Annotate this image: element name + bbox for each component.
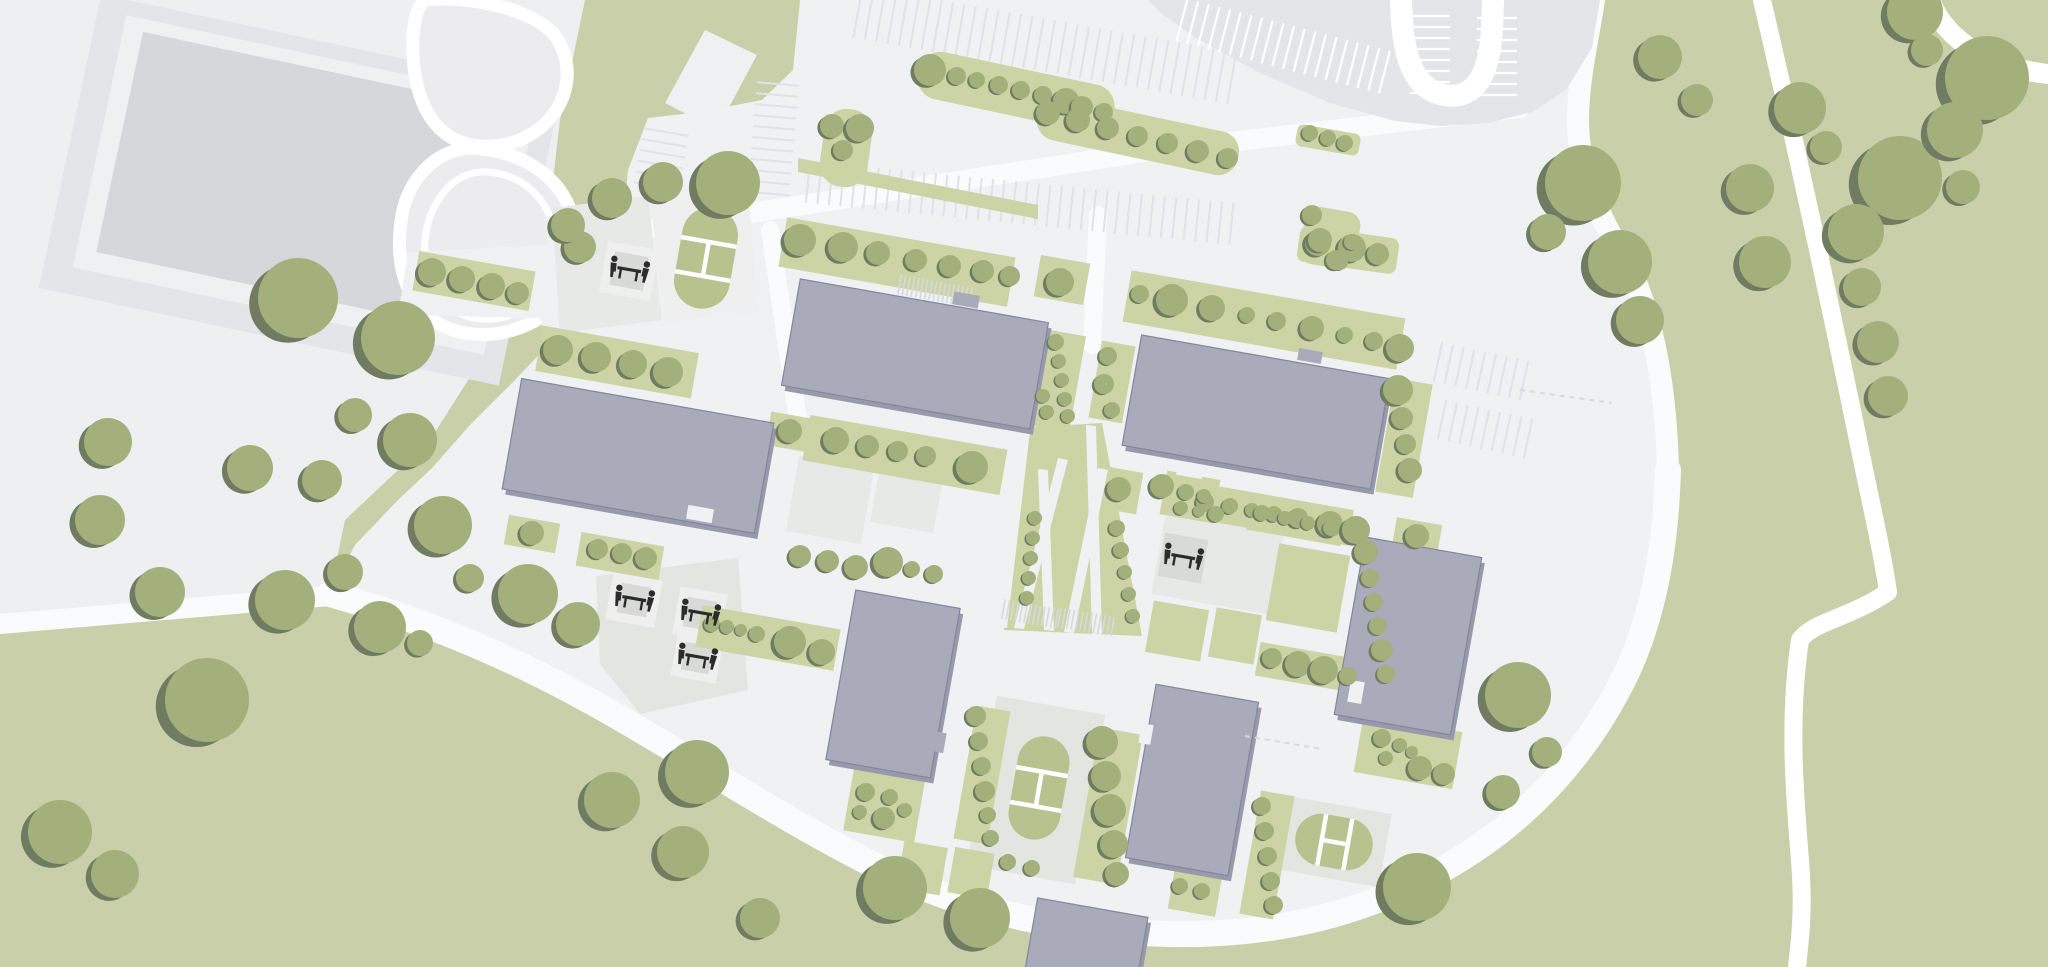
tree-canopy [1326,250,1346,270]
tree-canopy [846,114,874,142]
tree-canopy [456,564,484,592]
tree-canopy [91,850,139,898]
tree-canopy [898,803,912,817]
tree-canopy [1396,434,1416,454]
tree-canopy [1020,591,1034,605]
tree-canopy [1373,729,1391,747]
tree-canopy [1616,296,1664,344]
tree-canopy [449,266,475,292]
tree-canopy [592,178,632,218]
tree-canopy [774,626,806,658]
tree-canopy [888,441,908,461]
tree-canopy [925,565,943,583]
tree-canopy [612,543,632,563]
tree-canopy [1055,373,1069,387]
tree-canopy [939,255,961,277]
tree-canopy [1927,102,1983,158]
tree-canopy [520,521,544,545]
tree-canopy [973,757,991,775]
tree-canopy [956,451,988,483]
tree-canopy [1126,609,1140,623]
tree-canopy [407,630,433,656]
tree-canopy [556,602,600,646]
tree-canopy [1530,214,1566,250]
tree-canopy [227,445,273,491]
tree-canopy [1100,830,1128,858]
tree-canopy [975,781,995,801]
tree-canopy [1278,511,1292,525]
tree-canopy [584,772,640,828]
tree-canopy [1843,268,1881,306]
tree-canopy [507,282,529,304]
tree-canopy [1040,405,1054,419]
tree-canopy [635,547,657,569]
tree-canopy [1365,332,1383,350]
tree-canopy [916,446,936,466]
tree-canopy [696,151,760,215]
tree-canopy [1308,228,1332,252]
tree-canopy [1187,140,1209,162]
tree-canopy [1337,327,1353,343]
tree-canopy [1383,375,1413,405]
lawn-square [1266,543,1350,632]
tree-canopy [1122,587,1136,601]
tree-canopy [833,140,853,160]
tree-canopy [970,732,988,750]
tree-canopy [1254,505,1270,521]
site-plan-map [0,0,2048,967]
tree-canopy [882,789,898,805]
tree-canopy [1265,896,1283,914]
tree-canopy [1208,506,1224,522]
tree-canopy [1405,524,1429,548]
tree-canopy [1302,205,1322,225]
tree-canopy [1024,860,1040,876]
tree-canopy [1774,82,1826,134]
tree-canopy [1545,145,1621,221]
tree-canopy [980,807,996,823]
tree-canopy [1868,376,1908,416]
tree-canopy [383,413,437,467]
tree-canopy [1337,135,1353,151]
tree-canopy [1810,131,1842,163]
tree-canopy [1256,822,1274,840]
tree-canopy [740,898,780,938]
tree-canopy [1109,520,1125,536]
site-plan-page [0,0,2048,967]
tree-canopy [653,357,683,387]
tree-canopy [1150,474,1174,498]
tree-canopy [784,224,816,256]
tree-canopy [1194,883,1210,899]
tree-canopy [1131,285,1149,303]
tree-canopy [828,232,858,262]
tree-canopy [844,555,868,579]
tree-canopy [823,427,849,453]
tree-canopy [1857,321,1899,363]
tree-canopy [735,624,747,636]
tree-canopy [1193,505,1205,517]
tree-canopy [1486,775,1520,809]
lawn-square [1145,601,1209,662]
tree-canopy [1365,593,1383,611]
tree-canopy [1091,761,1121,791]
tree-canopy [1383,853,1451,921]
tree-canopy [1310,656,1338,684]
tree-canopy [1024,551,1038,565]
tree-canopy [1000,854,1016,870]
tree-canopy [543,335,573,365]
tree-canopy [258,258,338,338]
tree-canopy [1107,477,1131,501]
tree-canopy [1222,498,1238,514]
tree-canopy [414,496,472,554]
tree-canopy [28,800,92,864]
tree-canopy [904,561,920,577]
tree-canopy [1099,347,1117,365]
tree-canopy [327,554,363,590]
tree-canopy [1026,531,1040,545]
tree-canopy [1094,794,1126,826]
tree-canopy [1300,316,1324,340]
tree-canopy [418,258,446,286]
tree-canopy [1408,756,1432,780]
tree-canopy [1262,872,1280,890]
tree-canopy [1197,489,1211,503]
tree-canopy [1406,746,1418,758]
tree-canopy [1377,665,1395,683]
tree-canopy [1342,516,1370,544]
tree-strip [843,769,925,843]
tree-canopy [863,856,927,920]
tree-canopy [255,570,315,630]
tree-canopy [1022,571,1036,585]
tree-canopy [969,72,985,88]
tree-canopy [857,783,875,801]
tree-canopy [1156,284,1188,316]
tree-canopy [866,241,890,265]
tree-canopy [1371,639,1393,661]
tree-canopy [873,807,895,829]
pond-upper [413,0,567,146]
tree-canopy [853,805,867,819]
tree-canopy [966,706,986,726]
tree-canopy [135,567,185,617]
tree-canopy [1588,230,1652,294]
tree-canopy [165,658,249,742]
tree-canopy [914,54,946,86]
tree-canopy [789,545,811,567]
tree-canopy [1259,847,1277,865]
tree-canopy [1094,374,1114,394]
tree-canopy [1320,130,1336,146]
tree-canopy [1367,243,1389,265]
tree-canopy [1398,458,1422,482]
tree-canopy [749,626,765,642]
tree-canopy [1028,511,1042,525]
tree-canopy [1369,617,1387,635]
tree-canopy [1097,117,1119,139]
tree-canopy [1268,312,1286,330]
tree-canopy [1379,751,1393,765]
tree-canopy [1726,164,1774,212]
tree-canopy [809,639,835,665]
tree-canopy [990,76,1008,94]
tree-canopy [1433,763,1455,785]
tree-canopy [643,162,683,202]
tree-canopy [619,350,647,378]
tree-canopy [1174,501,1188,515]
tree-canopy [720,620,734,634]
tree-canopy [581,342,611,372]
tree-canopy [1061,409,1075,423]
tree-canopy [1048,334,1064,350]
tree-canopy [1058,392,1072,406]
tree-canopy [1178,484,1194,500]
tree-canopy [1532,737,1562,767]
tree-canopy [354,601,406,653]
tree-canopy [950,888,1010,948]
tree-canopy [361,301,435,375]
tree-canopy [873,547,903,577]
tree-canopy [820,114,844,138]
tree-canopy [1253,797,1271,815]
tree-canopy [1344,234,1360,250]
tree-canopy [1128,126,1148,146]
tree-canopy [1113,542,1129,558]
tree-canopy [1638,35,1682,79]
tree-canopy [1323,520,1339,536]
tree-canopy [1302,125,1318,141]
tree-canopy [1739,236,1791,288]
tree-canopy [302,460,342,500]
tree-canopy [1911,34,1943,66]
tree-canopy [84,418,132,466]
tree-canopy [972,260,994,282]
tree-canopy [948,67,966,85]
tree-canopy [1485,662,1551,728]
tree-canopy [1066,108,1090,132]
tree-canopy [657,826,709,878]
tree-canopy [551,208,585,242]
tree-canopy [665,740,729,804]
tree-canopy [588,539,608,559]
tree-canopy [1104,402,1120,418]
tree-canopy [1828,204,1884,260]
tree-canopy [75,495,125,545]
tree-canopy [1000,266,1020,286]
tree-canopy [1339,667,1357,685]
tree-canopy [1012,81,1030,99]
lawn-square [1208,607,1262,664]
tree-canopy [1086,726,1118,758]
tree-canopy [1118,565,1132,579]
tree-canopy [1301,516,1315,530]
tree-canopy [1946,170,1980,204]
mid-vertical-road [1092,215,1098,345]
tree-canopy [479,273,505,299]
tree-canopy [778,419,802,443]
tree-canopy [1354,540,1378,564]
tree-canopy [1262,648,1282,668]
tree-canopy [1199,295,1225,321]
tree-canopy [1105,862,1129,886]
tree-canopy [1218,148,1238,168]
tree-canopy [1052,354,1066,368]
tree-canopy [498,564,558,624]
tree-canopy [817,550,839,572]
tree-canopy [1239,307,1255,323]
tree-canopy [1386,334,1414,362]
tree-canopy [1046,268,1074,296]
tree-canopy [1681,84,1713,116]
tree-canopy [857,435,879,457]
tree-canopy [1391,407,1413,429]
tree-canopy [1172,878,1188,894]
tree-canopy [983,830,999,846]
tree-canopy [1158,133,1178,153]
tree-canopy [1361,569,1379,587]
tree-canopy [1393,738,1407,752]
tree-canopy [905,249,927,271]
tree-canopy [1036,101,1060,125]
tree-canopy [1036,389,1050,403]
tree-canopy [338,398,372,432]
